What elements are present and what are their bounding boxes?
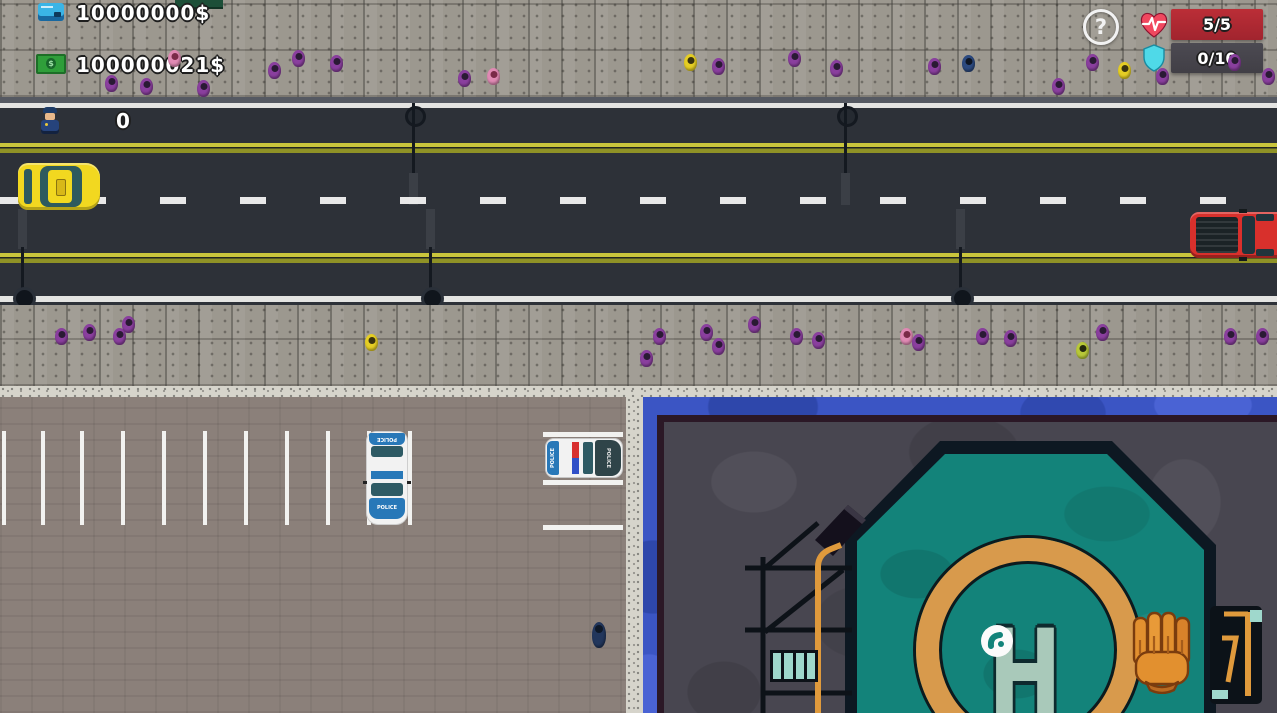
pedestrian-purple [1156,68,1169,85]
police-car-windshield [583,442,593,474]
truck-windshield [1242,216,1255,254]
pedestrian-purple [748,316,761,333]
pedestrian-purple [122,316,135,333]
armor-bar: 0/10 [1171,43,1263,73]
pedestrian-purple [330,55,343,72]
street-lamp-head [405,106,426,127]
pedestrian-purple [140,78,153,95]
road: 0 [0,97,1277,305]
pedestrian-purple [812,332,825,349]
credit-card-icon [38,3,64,21]
pedestrian-purple [1096,324,1109,341]
phone-marker-icon[interactable] [981,625,1013,657]
truck-bed [1196,217,1238,253]
truck-side-window [1256,214,1274,221]
pedestrian-purple [1224,328,1237,345]
health-value: 5/5 [1203,15,1231,34]
pedestrian-purple [788,50,801,67]
pedestrian-purple [292,50,305,67]
lamp-shadow [409,173,418,205]
parking-line [162,431,166,525]
police-car-windshield [371,483,403,496]
fist-pickup-icon[interactable] [1132,610,1192,694]
pedestrian-purple [653,328,666,345]
pedestrian-purple [1052,78,1065,95]
pedestrian-purple [105,75,118,92]
police-car-trunk-band: POLICE [547,441,559,475]
parking-lot: POLICE POLICE POLICE POLICE [0,397,626,713]
street-lamp-head [837,106,858,127]
parking-line [41,431,45,525]
pedestrian-police [962,55,975,72]
parking-line [543,432,623,437]
lamp-shadow [18,209,27,249]
parking-line [543,525,623,530]
truck-mirror [1239,209,1247,213]
pickup-truck [1190,212,1277,258]
bank-amount: 10000000$ [76,1,210,25]
pedestrian-purple [197,80,210,97]
taxi-sunroof [56,179,66,196]
police-car-rear-window [371,446,403,457]
pedestrian-purple [1256,328,1269,345]
pedestrian-purple [1228,54,1241,71]
curb-line-bottom [0,296,1277,302]
truck-mirror [1239,257,1247,261]
lamp-shadow [426,209,435,249]
parking-line [121,431,125,525]
police-car-hood-label: POLICE [369,498,405,519]
pedestrian-purple [83,324,96,341]
yellow-line-bottom [0,253,1277,263]
pedestrian-purple [700,324,713,341]
pedestrian-purple [830,60,843,77]
parking-line [285,431,289,525]
pedestrian-pink [168,50,181,67]
phone-handset-glyph [987,631,1007,651]
pedestrian-olive [1076,342,1089,359]
pedestrian-purple [1262,68,1275,85]
lamp-shadow [841,173,850,205]
lane-divider [0,197,1277,204]
pedestrian-purple [790,328,803,345]
parking-line [2,431,6,525]
pedestrian-purple [912,334,925,351]
parking-line [244,431,248,525]
help-label: ? [1095,15,1107,39]
pedestrian-purple [268,62,281,79]
parking-line [326,431,330,525]
lamp-shadow [956,209,965,249]
wanted-count: 0 [116,109,131,133]
concrete-strip-horizontal [0,386,1277,397]
taxi-rear-window [24,169,32,204]
police-car-vertical: POLICE POLICE [366,431,408,525]
pedestrian-purple [55,328,68,345]
parking-line [203,431,207,525]
pedestrian-purple [976,328,989,345]
concrete-strip-vertical [626,397,643,713]
wanted-officer-icon [40,107,60,139]
pedestrian-purple [458,70,471,87]
pedestrian-yellow [1118,62,1131,79]
help-button[interactable]: ? [1083,9,1119,45]
police-lightbar-red [572,442,579,458]
heart-icon [1139,11,1169,39]
police-car-hood: POLICE [595,440,621,476]
pedestrian-purple [712,58,725,75]
game-screen: 0 POLICE POLICE POLICE POLICE [0,0,1277,713]
parking-line [543,480,623,485]
pedestrian-purple [928,58,941,75]
pedestrian-purple [640,350,653,367]
parking-line [408,431,412,525]
cash-amount: 100000021$ [76,53,225,77]
pedestrian-pink [487,68,500,85]
police-officer-pedestrian [592,622,606,648]
truck-side-window [1256,249,1274,256]
cash-icon: $ [36,54,66,74]
police-lightbar-blue [572,458,579,474]
health-bar: 5/5 [1171,9,1263,40]
curb-line-top [0,103,1277,108]
parking-line [80,431,84,525]
pedestrian-purple [712,338,725,355]
roof-ladder [1208,604,1264,706]
yellow-line-top [0,143,1277,153]
pedestrian-purple [1086,54,1099,71]
pedestrian-yellow [684,54,697,71]
taxi-car [18,163,100,210]
police-car-trunk-label: POLICE [369,433,405,445]
pedestrian-purple [1004,330,1017,347]
police-car-horizontal: POLICE POLICE [545,438,623,478]
police-car-roof-stripe [371,471,403,479]
harbor-scene: H [643,397,1277,713]
pedestrian-yellow [365,334,378,351]
roof-vent [770,650,818,682]
